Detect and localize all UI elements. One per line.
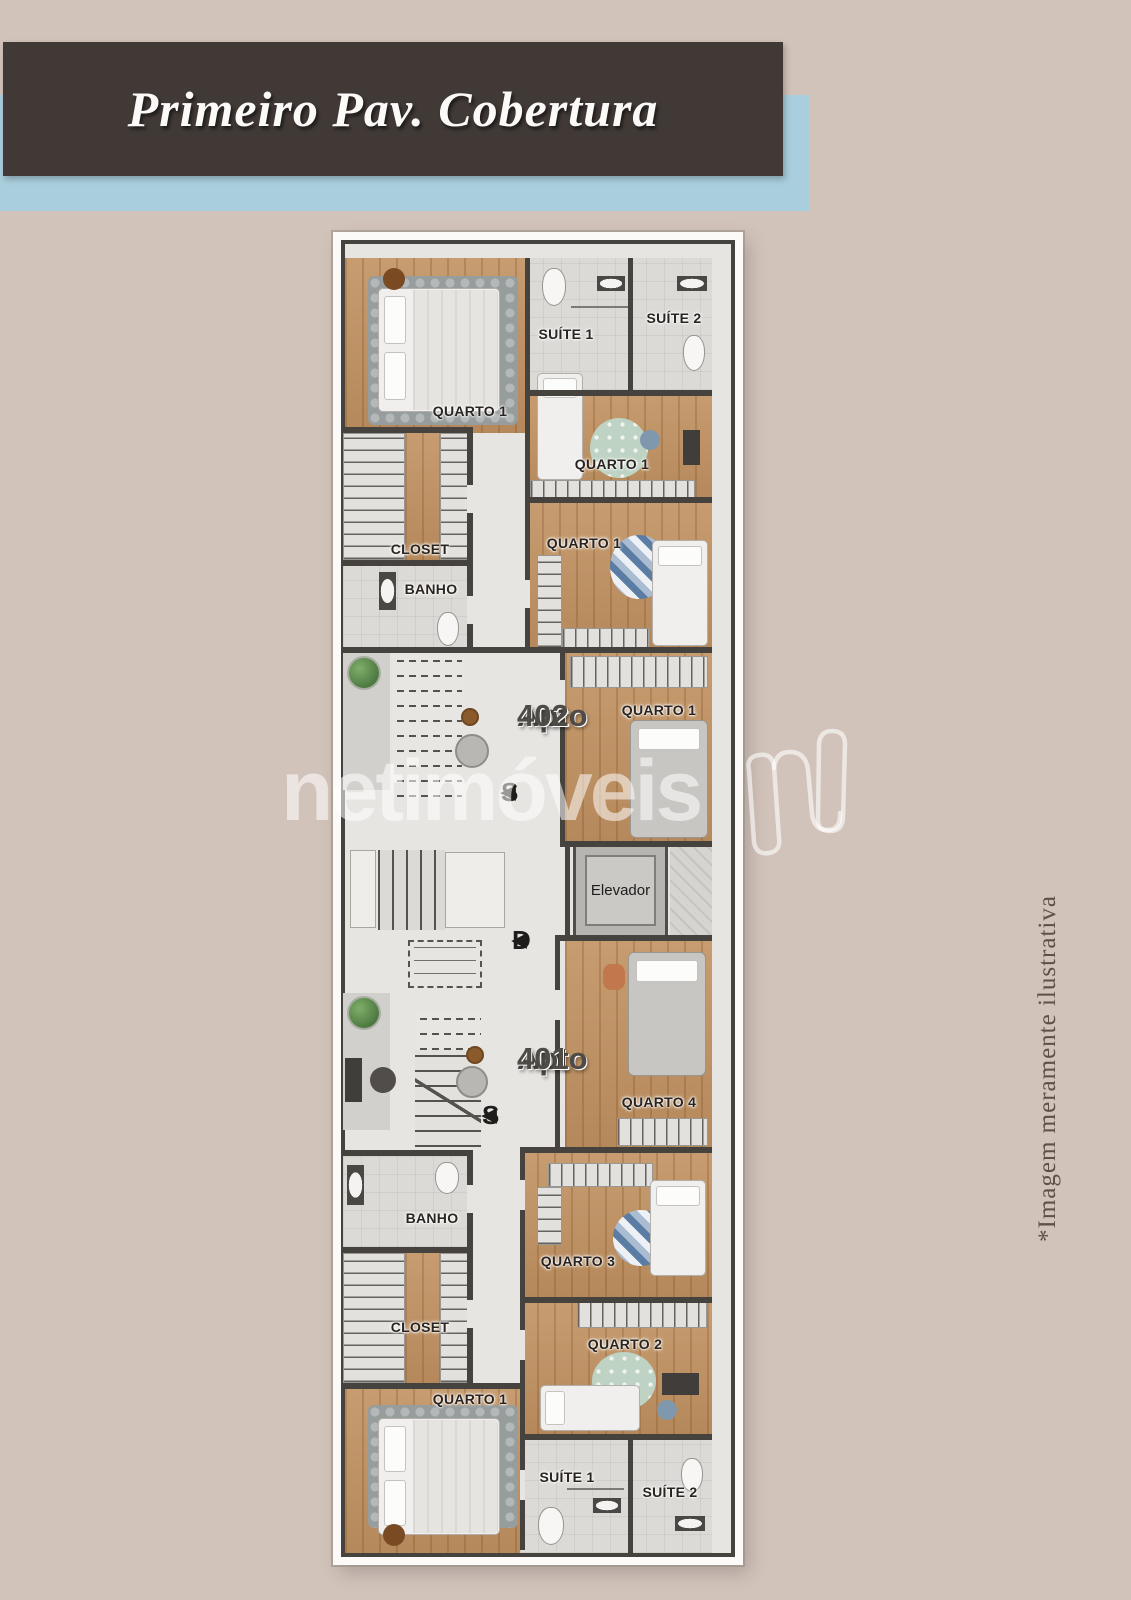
room-label: QUARTO 1 xyxy=(433,1391,508,1407)
desk xyxy=(662,1373,699,1395)
wall xyxy=(525,390,712,396)
wardrobe-rack xyxy=(570,656,708,688)
door-opening xyxy=(520,1180,525,1210)
stairs-landing xyxy=(445,852,505,928)
netimoveis-n-logo-icon xyxy=(733,722,855,874)
door-opening xyxy=(520,1330,525,1360)
room-label: BANHO xyxy=(405,581,458,597)
potted-plant xyxy=(349,998,379,1028)
wall xyxy=(520,1434,712,1440)
room-label: QUARTO 1 xyxy=(547,535,622,551)
apartment-number: 401 xyxy=(517,1043,569,1076)
room-label: CLOSET xyxy=(391,1319,450,1335)
door-opening xyxy=(467,485,473,513)
room-label: QUARTO 1 xyxy=(433,403,508,419)
desk-chair xyxy=(640,430,660,450)
stairs-central-treads xyxy=(378,850,445,930)
sink-counter xyxy=(675,1516,705,1531)
stairs-401-dashed xyxy=(415,1012,481,1050)
room-label: SUÍTE 1 xyxy=(538,326,593,342)
room-label: CLOSET xyxy=(391,541,450,557)
header-title-box: Primeiro Pav. Cobertura xyxy=(3,42,783,176)
stool xyxy=(383,1524,405,1546)
pillow xyxy=(636,960,698,982)
toilet xyxy=(542,268,566,306)
pillow xyxy=(384,352,406,400)
apartment-number: 402 xyxy=(517,700,569,733)
wardrobe-rack xyxy=(548,1163,653,1187)
toilet xyxy=(435,1162,459,1194)
pillow xyxy=(638,728,700,750)
room-label: SUÍTE 2 xyxy=(642,1484,697,1500)
room-label: QUARTO 4 xyxy=(622,1094,697,1110)
wardrobe-rack xyxy=(562,628,650,648)
stairs-402-up xyxy=(392,652,462,797)
desk xyxy=(345,1058,362,1102)
stair-letter: D xyxy=(512,925,531,956)
room-label: QUARTO 1 xyxy=(575,456,650,472)
wall xyxy=(341,1383,520,1389)
closet-401-rack-left xyxy=(343,1253,405,1383)
wall xyxy=(341,647,525,653)
armchair xyxy=(455,734,489,768)
blanket xyxy=(413,290,498,410)
shower-glass xyxy=(567,1488,624,1490)
potted-plant xyxy=(349,658,379,688)
page-title: Primeiro Pav. Cobertura xyxy=(128,80,659,138)
wall xyxy=(565,847,570,941)
door-opening xyxy=(520,1470,525,1500)
shower-glass xyxy=(571,306,628,308)
door-opening xyxy=(467,1185,473,1213)
room-label: QUARTO 1 xyxy=(622,702,697,718)
wall xyxy=(520,1297,712,1303)
room-label: BANHO xyxy=(406,1210,459,1226)
wardrobe-rack xyxy=(537,1187,562,1245)
elevator-shaft: Elevador xyxy=(573,843,668,938)
side-table xyxy=(461,708,479,726)
elevator-label: Elevador xyxy=(591,882,650,899)
door-opening xyxy=(525,580,530,608)
pillow xyxy=(384,296,406,344)
wall xyxy=(341,427,467,433)
armchair xyxy=(456,1066,488,1098)
wall xyxy=(341,1247,467,1253)
stair-letter: S xyxy=(501,777,518,808)
toilet xyxy=(538,1507,564,1545)
room-label: QUARTO 2 xyxy=(588,1336,663,1352)
room-401-suite1-floor xyxy=(520,1440,628,1553)
blanket xyxy=(413,1420,498,1533)
wall xyxy=(525,497,712,503)
pillow xyxy=(384,1426,406,1472)
pillow xyxy=(658,546,702,566)
sink-counter xyxy=(597,276,625,291)
desk xyxy=(683,430,700,465)
wall xyxy=(628,1440,633,1553)
pillow xyxy=(656,1186,700,1206)
stairs-401-down xyxy=(415,1050,481,1147)
stair-letter: S xyxy=(482,1100,499,1131)
page: Primeiro Pav. Cobertura xyxy=(0,0,1131,1600)
wardrobe-rack xyxy=(617,1118,708,1146)
stool xyxy=(383,268,405,290)
disclaimer-text: *Imagem meramente ilustrativa xyxy=(1034,866,1062,1242)
wall xyxy=(341,1150,473,1156)
pillow xyxy=(545,1391,565,1425)
door-opening xyxy=(555,990,560,1020)
stair-shaft xyxy=(350,850,376,928)
service-duct xyxy=(670,846,712,938)
wall xyxy=(525,647,712,653)
wall xyxy=(555,935,712,941)
sink-counter xyxy=(593,1498,621,1513)
bath-vanity xyxy=(379,572,396,610)
desk-chair xyxy=(657,1400,677,1420)
side-table xyxy=(466,1046,484,1064)
wall xyxy=(341,560,467,566)
toilet xyxy=(683,335,705,371)
wall xyxy=(628,258,633,390)
stairs-dashed-flight xyxy=(408,940,482,988)
wall xyxy=(520,1147,712,1153)
room-label: SUÍTE 1 xyxy=(539,1469,594,1485)
sink-counter xyxy=(677,276,707,291)
floor-plan: Elevador xyxy=(333,232,743,1565)
door-opening xyxy=(467,1300,473,1328)
armchair xyxy=(603,964,625,990)
wardrobe-rack xyxy=(537,555,562,648)
wall xyxy=(560,841,712,847)
desk-chair xyxy=(370,1067,396,1093)
wardrobe-rack xyxy=(577,1302,707,1328)
pillow xyxy=(384,1480,406,1526)
room-label: SUÍTE 2 xyxy=(646,310,701,326)
door-opening xyxy=(467,596,473,624)
closet-401-floor xyxy=(405,1253,440,1383)
toilet xyxy=(437,612,459,646)
room-label: QUARTO 3 xyxy=(541,1253,616,1269)
bath-vanity xyxy=(347,1165,364,1205)
